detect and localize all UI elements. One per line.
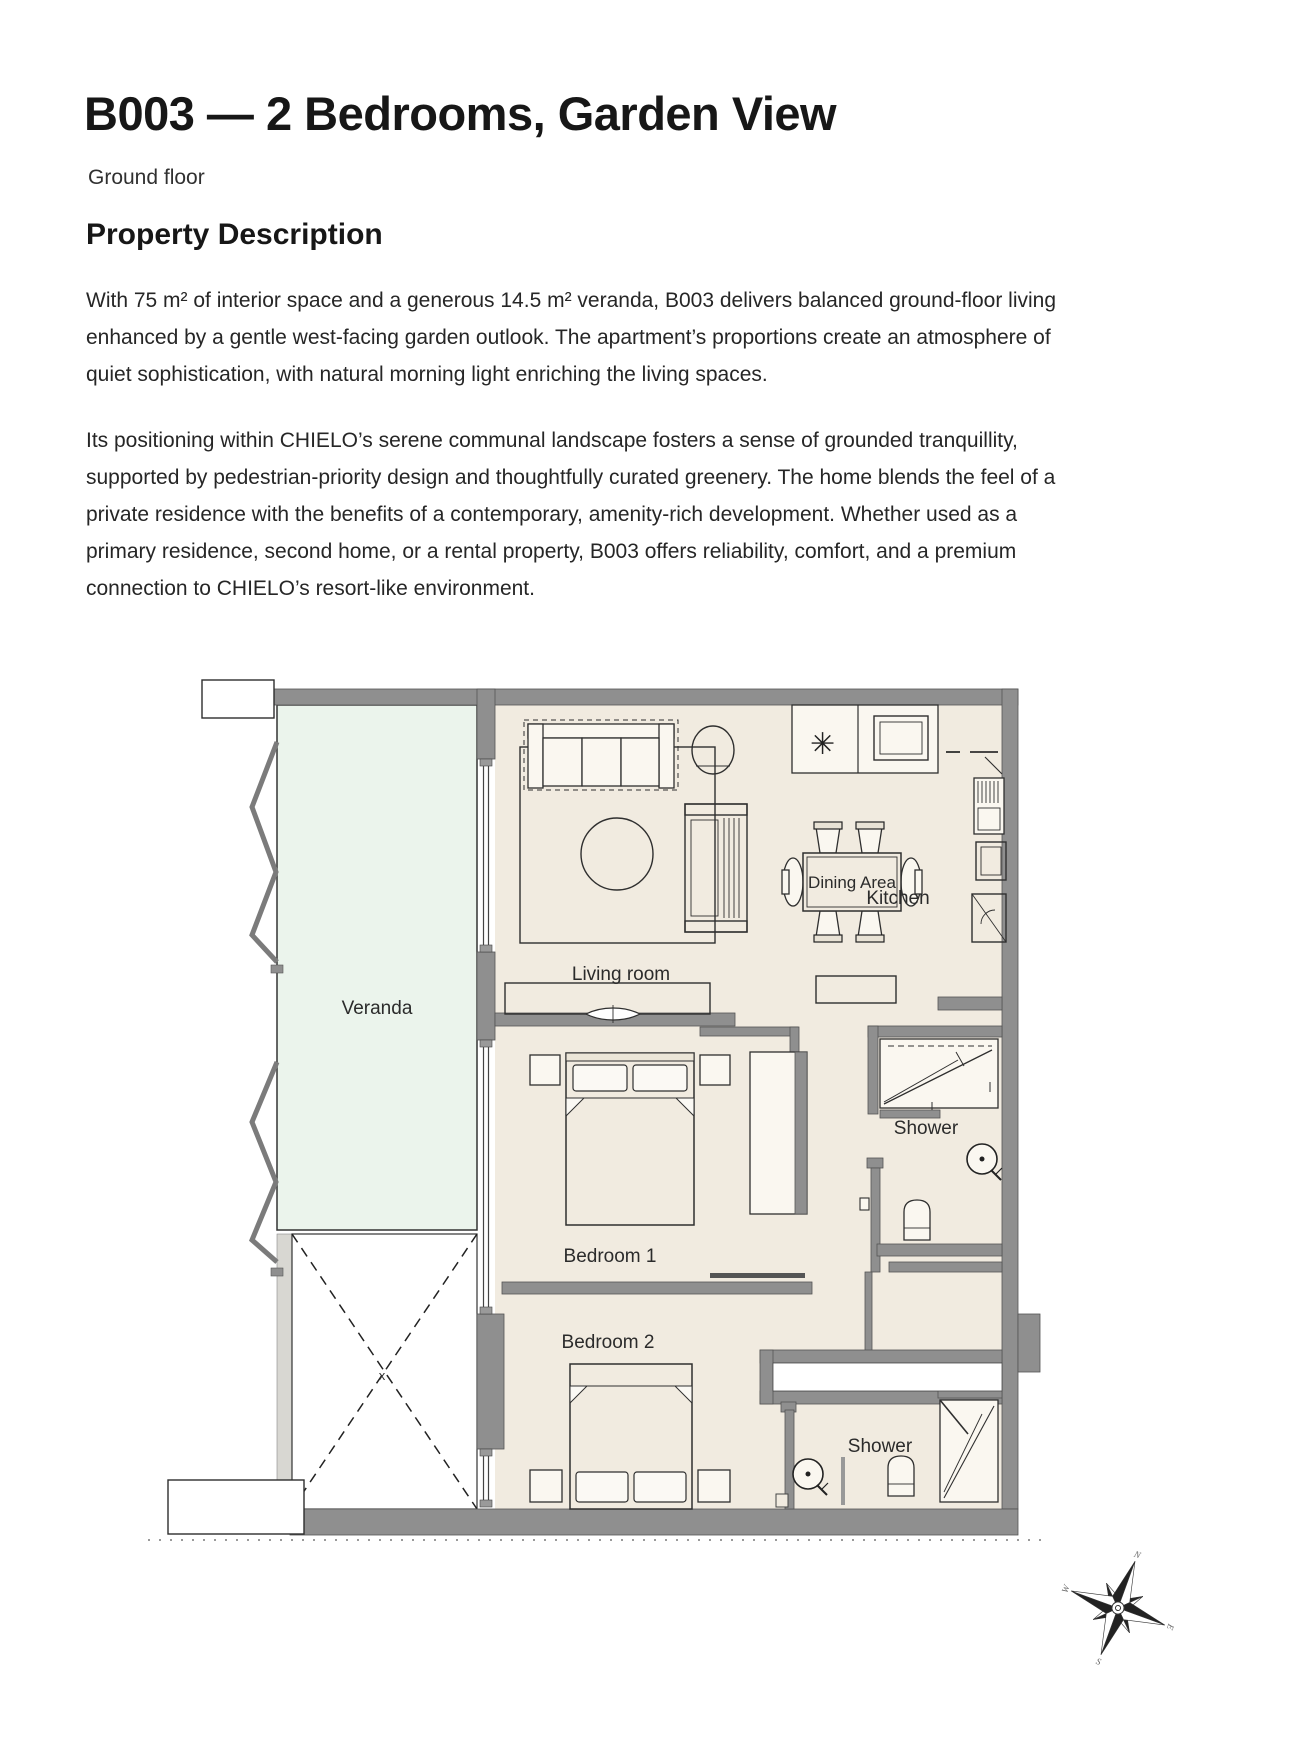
door-hinge-tick [271,1268,283,1276]
veranda-floor [277,705,477,1230]
bed-1 [566,1053,694,1225]
fridge [974,778,1004,834]
living-room-label: Living room [572,964,670,985]
shower-bottom-label: Shower [848,1436,913,1457]
floor-plan: ✳ [140,662,1050,1562]
nightstand [530,1055,560,1085]
stove-burner-icon: ✳ [810,728,835,761]
floor-subtitle: Ground floor [88,166,205,190]
dining-area-label: Dining Area [808,873,896,892]
nightstand [530,1470,562,1502]
sofa [528,724,674,788]
compass-rose: N E S W [1052,1542,1184,1674]
utility-box-bottom [168,1480,304,1534]
bedroom-1-label: Bedroom 1 [564,1246,657,1267]
description-paragraph-1: With 75 m² of interior space and a gener… [86,282,1091,393]
nightstand [698,1470,730,1502]
door-threshold [776,1494,788,1507]
description-paragraph-2: Its positioning within CHIELO’s serene c… [86,422,1091,607]
shower-enclosure-bottom [940,1400,998,1502]
entry-corridor-slot [773,1363,1002,1391]
bed-2 [570,1364,692,1509]
utility-box-top [202,680,274,718]
section-heading: Property Description [86,218,383,252]
shower-screen [841,1457,845,1505]
compass-east-label: E [1165,1622,1177,1632]
compass-north-label: N [1132,1549,1143,1561]
nightstand [700,1055,730,1085]
toilet-bottom [888,1456,914,1496]
patio-x-mark: x [379,1368,386,1383]
shower-enclosure-top [880,1039,998,1110]
wall-hook [860,1198,869,1210]
brochure-page: B003 — 2 Bedrooms, Garden View Ground fl… [0,0,1294,1758]
wardrobe [750,1052,807,1214]
folding-door-icons [252,742,277,1262]
toilet-top [904,1200,930,1240]
compass-west-label: W [1060,1582,1072,1594]
floor-plan-drawing: ✳ [140,662,1050,1552]
compass-south-label: S [1095,1656,1103,1667]
veranda-label: Veranda [342,998,413,1019]
door-hinge-tick [271,965,283,973]
bedroom-2-label: Bedroom 2 [562,1332,655,1353]
page-title: B003 — 2 Bedrooms, Garden View [84,86,836,141]
compass-icon: N E S W [1052,1542,1184,1674]
shower-top-label: Shower [894,1118,959,1139]
sliding-door-leaf [710,1273,805,1278]
